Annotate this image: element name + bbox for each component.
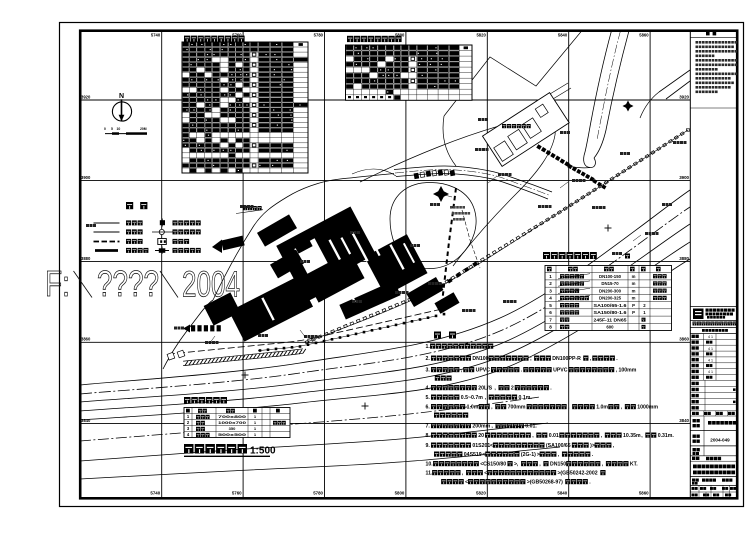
svg-text:2: 2: [511, 385, 514, 391]
svg-text:20: 20: [478, 433, 484, 439]
svg-text:3880: 3880: [81, 256, 91, 261]
svg-text:1000x700: 1000x700: [218, 420, 247, 425]
svg-text:5840: 5840: [557, 491, 567, 496]
svg-text:2: 2: [549, 281, 552, 286]
svg-text:245F-11 DN65: 245F-11 DN65: [594, 317, 628, 322]
svg-text:DN150: DN150: [550, 461, 566, 467]
svg-text:20M: 20M: [140, 127, 147, 131]
svg-text:1: 1: [549, 274, 552, 279]
svg-text:5860: 5860: [639, 491, 649, 496]
svg-text:(SA100/65: (SA100/65: [546, 443, 571, 449]
svg-text:SA100/65-1.6: SA100/65-1.6: [594, 303, 628, 308]
svg-text:KT.: KT.: [630, 461, 638, 467]
svg-text:5: 5: [549, 303, 552, 308]
svg-text:10: 10: [117, 127, 121, 131]
svg-text:;: ;: [530, 356, 532, 362]
svg-text:01S201: 01S201: [472, 443, 490, 449]
svg-text:04S519: 04S519: [464, 452, 482, 458]
svg-text:1.: 1.: [426, 344, 431, 350]
svg-text:DN100: DN100: [552, 356, 568, 362]
svg-text:3860: 3860: [81, 337, 91, 342]
svg-text:m: m: [632, 281, 636, 286]
svg-text:(GB50242-2002: (GB50242-2002: [560, 470, 597, 476]
svg-text:>: >: [537, 452, 540, 458]
svg-text:3840: 3840: [679, 418, 689, 423]
svg-text:)>: )>: [590, 443, 595, 449]
svg-text:9.: 9.: [426, 443, 431, 449]
svg-text:350: 350: [229, 426, 236, 431]
svg-text:2004: 2004: [182, 264, 240, 305]
svg-text:DN100-150: DN100-150: [599, 274, 622, 279]
svg-text:3920: 3920: [679, 94, 689, 99]
svg-text:20L/S: 20L/S: [478, 385, 492, 391]
svg-text:3.: 3.: [426, 367, 431, 373]
svg-text:3: 3: [549, 288, 552, 293]
svg-text:5760: 5760: [232, 491, 242, 496]
svg-text:1.0m: 1.0m: [596, 404, 608, 410]
svg-text:0.1m.: 0.1m.: [519, 395, 533, 401]
svg-text:1.0m: 1.0m: [467, 404, 479, 410]
svg-text:3900: 3900: [679, 175, 689, 180]
svg-text:7.: 7.: [426, 423, 431, 429]
svg-text:DN15-70: DN15-70: [601, 281, 619, 286]
svg-text:5820: 5820: [476, 491, 486, 496]
svg-text:DN200-325: DN200-325: [599, 296, 622, 301]
svg-text:6: 6: [549, 310, 552, 315]
svg-text:0.01: 0.01: [549, 433, 559, 439]
svg-text:CS150/80: CS150/80: [483, 461, 506, 467]
svg-text:, 100mm: , 100mm: [616, 367, 637, 373]
svg-text:3860: 3860: [679, 337, 689, 342]
svg-text:3900: 3900: [81, 175, 91, 180]
svg-text:m: m: [632, 274, 636, 279]
svg-text:5780: 5780: [313, 491, 323, 496]
svg-text:700x800: 700x800: [218, 414, 247, 419]
svg-text:4.: 4.: [426, 385, 431, 391]
svg-text:5740: 5740: [151, 33, 161, 38]
svg-text:1:500: 1:500: [250, 446, 276, 457]
svg-text:UPVC: UPVC: [553, 367, 568, 373]
svg-text:<: <: [490, 443, 493, 449]
svg-text:5840: 5840: [558, 33, 568, 38]
svg-text:DN100: DN100: [472, 356, 488, 362]
svg-text:4 1: 4 1: [708, 370, 713, 374]
svg-text:(GB50268-97): (GB50268-97): [530, 479, 563, 485]
svg-text:4 1: 4 1: [708, 347, 713, 351]
svg-text:F:: F:: [45, 263, 70, 304]
svg-text:PP-R: PP-R: [569, 356, 582, 362]
svg-text:4 1: 4 1: [708, 335, 713, 339]
svg-text:5800: 5800: [395, 491, 405, 496]
svg-text:(2G-1): (2G-1): [521, 452, 536, 458]
svg-text:5.: 5.: [426, 395, 431, 401]
svg-text:10.: 10.: [426, 461, 434, 467]
svg-text:P: P: [632, 310, 635, 315]
svg-text:0: 0: [104, 127, 106, 131]
svg-text:5: 5: [111, 127, 113, 131]
svg-text:2004-049: 2004-049: [710, 437, 730, 442]
svg-text:4 1: 4 1: [708, 359, 713, 363]
svg-text:10.35m: 10.35m: [623, 433, 641, 439]
svg-text:5860: 5860: [639, 33, 649, 38]
svg-text:DN200-300: DN200-300: [599, 288, 622, 293]
svg-text:0.01.: 0.01.: [525, 423, 537, 429]
svg-text:<: <: [482, 452, 485, 458]
svg-text:200mm: 200mm: [472, 423, 490, 429]
svg-text:m: m: [632, 288, 636, 293]
svg-text:N: N: [119, 93, 124, 100]
svg-text:500x500: 500x500: [218, 432, 247, 437]
svg-text:UPVC: UPVC: [476, 367, 491, 373]
svg-text:6.: 6.: [426, 404, 431, 410]
svg-text:8.: 8.: [426, 433, 431, 439]
svg-text:600: 600: [606, 325, 614, 330]
svg-text:5740: 5740: [150, 491, 160, 496]
svg-text:3840: 3840: [81, 418, 91, 423]
svg-text:700mm: 700mm: [508, 404, 526, 410]
svg-text:<: <: [465, 479, 468, 485]
svg-text:????: ????: [97, 263, 159, 304]
svg-text:4: 4: [549, 296, 552, 301]
svg-text:SA150/80-1.6: SA150/80-1.6: [594, 310, 628, 315]
svg-text:1000mm: 1000mm: [637, 404, 658, 410]
svg-text:7: 7: [549, 317, 552, 322]
svg-text:5820: 5820: [476, 33, 486, 38]
svg-text:0.5~0.7m: 0.5~0.7m: [461, 395, 483, 401]
svg-text:<: <: [484, 470, 487, 476]
svg-text:8: 8: [549, 325, 552, 330]
svg-text:3920: 3920: [81, 94, 91, 99]
svg-text:11.: 11.: [426, 470, 433, 476]
svg-text:0.31m.: 0.31m.: [658, 433, 675, 439]
svg-text:P: P: [632, 303, 635, 308]
svg-text:5780: 5780: [314, 33, 324, 38]
svg-text:2.: 2.: [426, 356, 431, 362]
svg-text:m: m: [632, 296, 636, 301]
